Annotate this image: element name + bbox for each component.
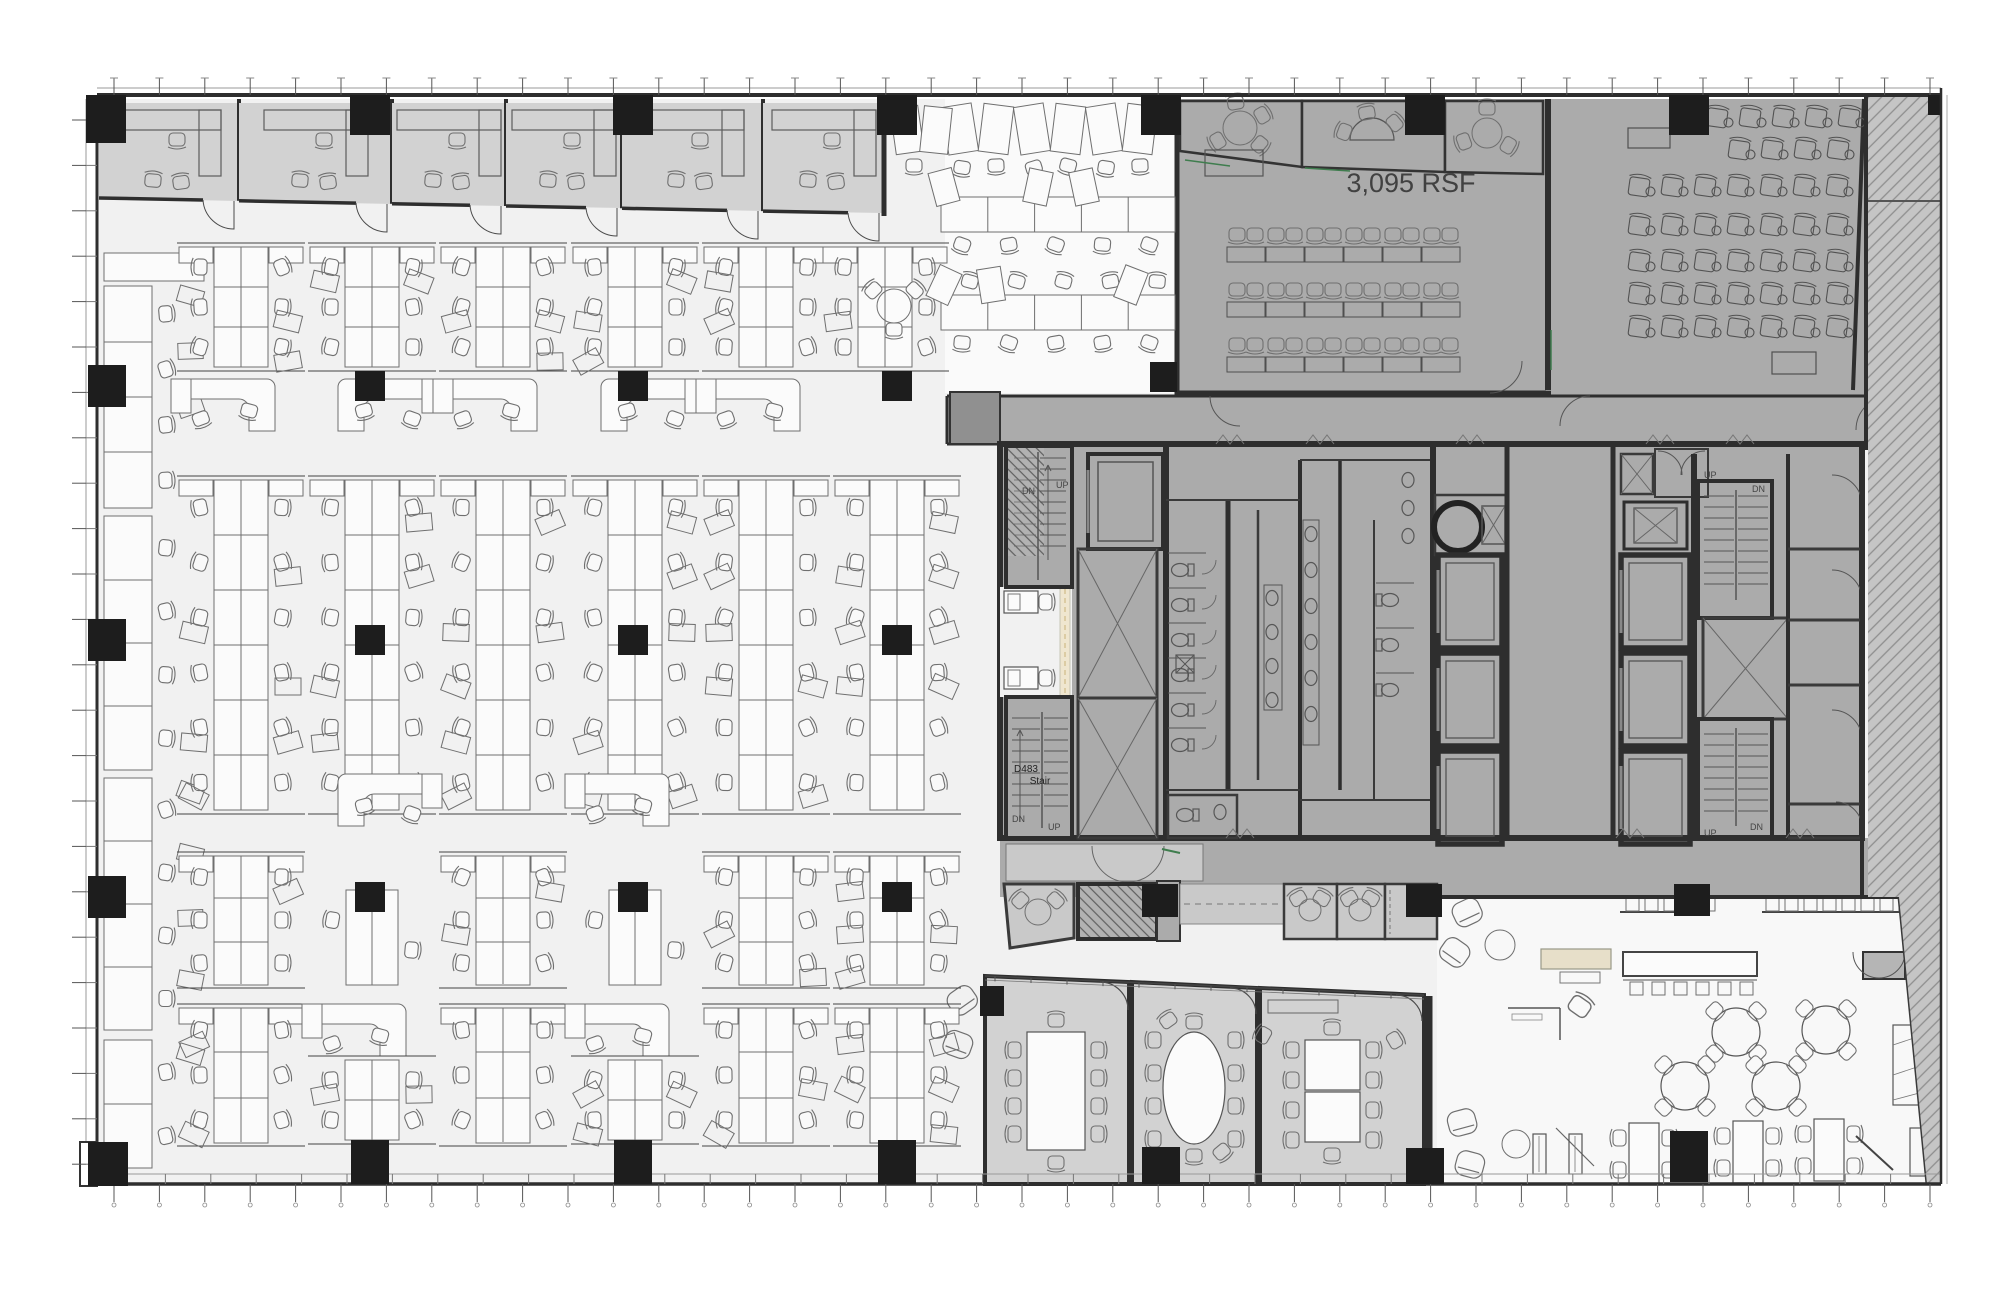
svg-text:DN: DN bbox=[1752, 484, 1765, 494]
svg-text:UP: UP bbox=[1704, 828, 1717, 838]
svg-text:UP: UP bbox=[1056, 480, 1069, 490]
svg-text:DN: DN bbox=[1750, 822, 1763, 832]
svg-text:3,095 RSF: 3,095 RSF bbox=[1346, 168, 1475, 198]
svg-text:UP: UP bbox=[1048, 822, 1061, 832]
svg-text:Stair: Stair bbox=[1030, 776, 1051, 787]
svg-text:DN: DN bbox=[1022, 486, 1035, 496]
svg-text:DN: DN bbox=[1012, 814, 1025, 824]
svg-text:D483: D483 bbox=[1014, 764, 1038, 775]
svg-text:UP: UP bbox=[1704, 470, 1717, 480]
